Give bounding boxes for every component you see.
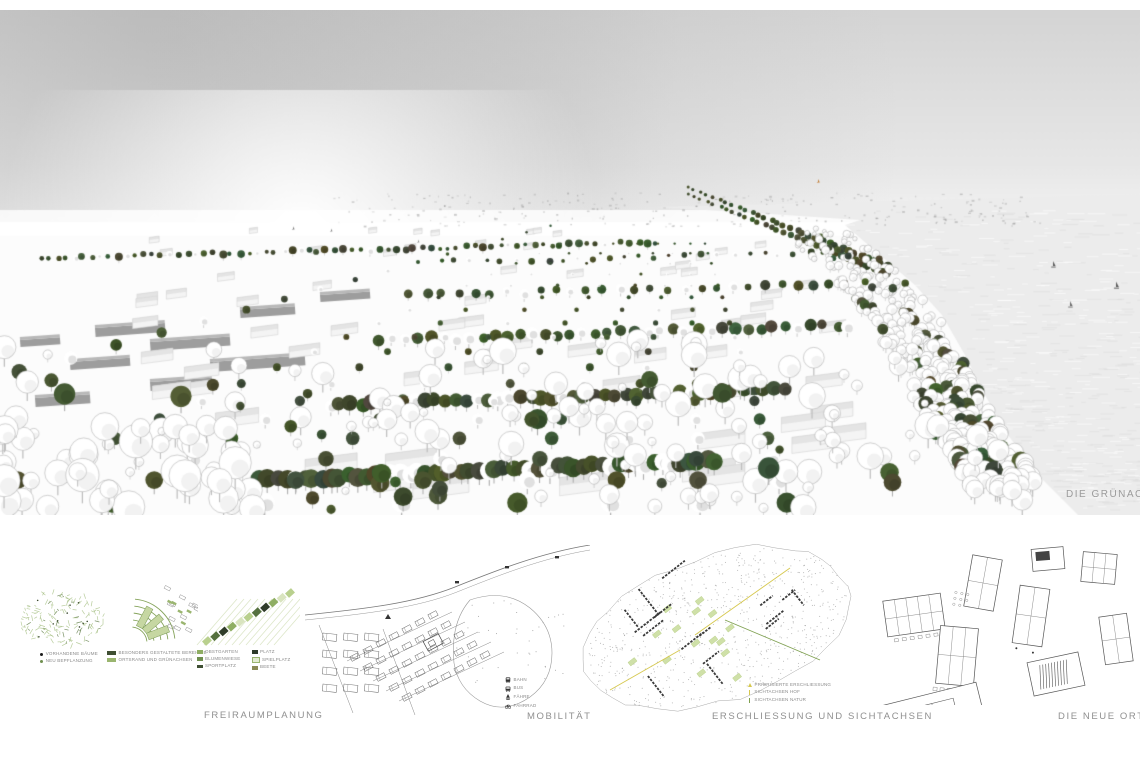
presentation-board: DIE GRÜNACHSE VORHANDENE BÄUME NEU BEPFL… bbox=[0, 0, 1140, 760]
freiraum-fan-diagram bbox=[103, 583, 198, 653]
panel-title-erschliessung: ERSCHLIESSUNG UND SICHTACHSEN bbox=[712, 711, 933, 722]
legend-structure: BESONDERS GESTALTETE BEREICHE ORTSRAND U… bbox=[107, 651, 207, 665]
freiraum-axis-diagram bbox=[195, 583, 300, 648]
legend-label: BEETE bbox=[260, 665, 276, 670]
legend-existing-trees: VORHANDENE BÄUME NEU BEPFLANZUNG bbox=[40, 652, 98, 666]
legend-item: NEU BEPFLANZUNG bbox=[40, 659, 98, 664]
legend-label: SPIELPLATZ bbox=[262, 658, 290, 663]
legend-label: SICHTACHSEN HOF bbox=[754, 690, 800, 695]
legend-item: VORHANDENE BÄUME bbox=[40, 652, 98, 657]
green-dot-marker bbox=[40, 660, 43, 663]
access-legend: PRIORISIERTE ERSCHLIESSUNG SICHTACHSEN H… bbox=[748, 683, 831, 705]
render-caption: DIE GRÜNACHSE bbox=[1066, 489, 1140, 500]
legend-label: FAHRRAD bbox=[514, 704, 537, 709]
legend-label: SICHTACHSEN NATUR bbox=[754, 698, 806, 703]
mobility-legend: BAHN BUS FÄHRE FAHRRAD bbox=[505, 677, 536, 711]
freiraum-sketch-plan bbox=[15, 585, 110, 655]
legend-label: NEU BEPFLANZUNG bbox=[46, 659, 93, 664]
yellow-triangle-marker bbox=[748, 683, 752, 687]
panel-title-ortsmitte: DIE NEUE ORTSMITTE bbox=[1058, 711, 1140, 722]
legend-uses-col1: OBSTGARTEN BLUMENWIESE SPORTPLATZ bbox=[197, 650, 240, 671]
legend-label: SPORTPLATZ bbox=[205, 664, 236, 669]
legend-label: OBSTGARTEN bbox=[205, 650, 238, 655]
floor-plans-collage bbox=[880, 545, 1140, 705]
legend-item: ORTSRAND UND GRÜNACHSEN bbox=[107, 658, 207, 663]
legend-uses-col2: PLATZ SPIELPLATZ BEETE bbox=[252, 650, 290, 673]
legend-label: BUS bbox=[514, 686, 524, 691]
legend-label: FÄHRE bbox=[514, 695, 530, 700]
render-image bbox=[0, 10, 1140, 515]
ferry-icon bbox=[505, 694, 511, 700]
green-swatch bbox=[197, 665, 203, 669]
green-line-marker bbox=[749, 698, 750, 703]
mobility-site-plan bbox=[305, 545, 590, 715]
legend-label: BAHN bbox=[514, 678, 527, 683]
train-icon bbox=[505, 677, 511, 683]
aerial-render bbox=[0, 10, 1140, 515]
black-dot-marker bbox=[40, 653, 43, 656]
legend-item: BESONDERS GESTALTETE BEREICHE bbox=[107, 651, 207, 656]
green-swatch bbox=[197, 650, 203, 654]
legend-label: ORTSRAND UND GRÜNACHSEN bbox=[119, 658, 193, 663]
green-swatch bbox=[197, 657, 203, 661]
bicycle-icon bbox=[505, 703, 511, 709]
yellow-line-marker bbox=[749, 690, 750, 695]
olive-swatch bbox=[252, 666, 258, 670]
legend-label: BESONDERS GESTALTETE BEREICHE bbox=[119, 651, 207, 656]
legend-label: VORHANDENE BÄUME bbox=[46, 652, 98, 657]
dark-green-swatch bbox=[107, 651, 116, 655]
legend-label: PLATZ bbox=[260, 650, 275, 655]
light-green-swatch bbox=[107, 658, 116, 662]
dark-swatch bbox=[252, 650, 258, 654]
legend-label: PRIORISIERTE ERSCHLIESSUNG bbox=[755, 683, 832, 688]
pale-swatch bbox=[252, 657, 260, 663]
legend-label: BLUMENWIESE bbox=[205, 657, 240, 662]
bus-icon bbox=[505, 686, 511, 692]
